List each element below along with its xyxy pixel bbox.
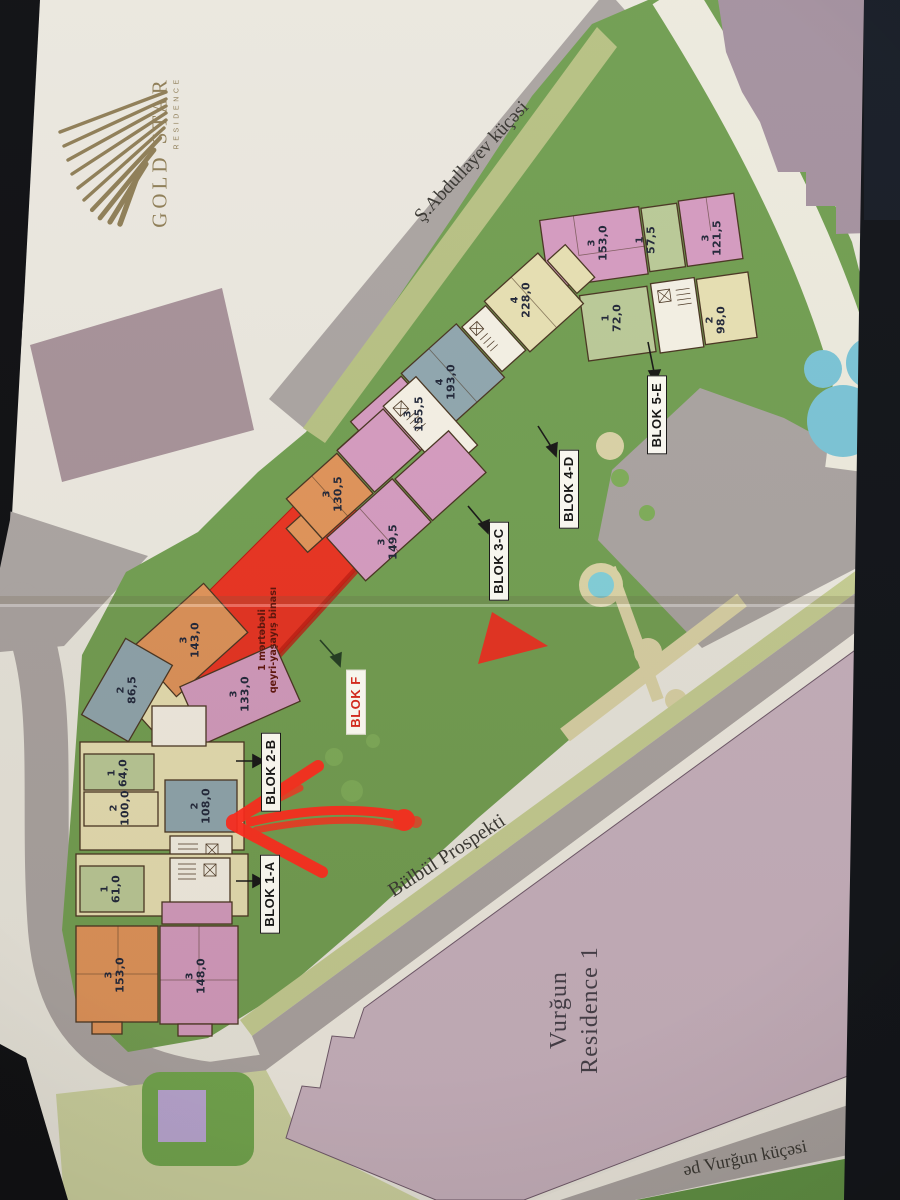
- vurgun-line2: Residence 1: [575, 946, 606, 1074]
- site-plan-photo: GOLD STAR RESIDENCE Ş.Abdullayev küçəsi …: [0, 0, 900, 1200]
- unit-area: 121,5: [711, 220, 722, 256]
- pond: [804, 350, 842, 388]
- unit-label: 3153,0: [104, 957, 125, 993]
- unit-label: 157,5: [635, 226, 656, 254]
- note-line2: qeyri-yaşayış binası: [268, 587, 279, 693]
- unit-label: 4193,0: [435, 364, 456, 400]
- unit-area: 153,0: [114, 957, 125, 993]
- unit-area: 61,0: [110, 875, 121, 903]
- unit-area: 155,5: [413, 396, 424, 432]
- block-label-1a: BLOK 1-A: [260, 854, 280, 933]
- unit-area: 108,0: [200, 788, 211, 824]
- unit-label: 3130,5: [322, 476, 343, 512]
- unit-label: 3133,0: [229, 676, 250, 712]
- vurgun-line1: Vurğun: [544, 971, 575, 1049]
- unit-area: 72,0: [611, 304, 622, 332]
- unit-label: 161,0: [100, 875, 121, 903]
- unit-area: 228,0: [520, 282, 531, 318]
- gold-star-logo: GOLD STAR RESIDENCE: [148, 76, 181, 228]
- unit-area: 57,5: [645, 226, 656, 254]
- unit-label: 3149,5: [377, 524, 398, 560]
- unit-label: 286,5: [116, 676, 137, 704]
- unit-area: 148,0: [195, 958, 206, 994]
- fold-crease: [0, 596, 900, 604]
- unit-area: 98,0: [715, 306, 726, 334]
- unit-area: 100,0: [119, 790, 130, 826]
- park-path: [596, 432, 624, 460]
- block-label-4d: BLOK 4-D: [559, 449, 579, 528]
- unit-label: 3121,5: [701, 220, 722, 256]
- unit-area: 64,0: [117, 759, 128, 787]
- note-line1: 1 mərtəbəli: [257, 609, 268, 671]
- unit-area: 133,0: [239, 676, 250, 712]
- block-label-5e: BLOK 5-E: [647, 376, 667, 455]
- fold-highlight: [0, 604, 900, 607]
- unit-area: 130,5: [332, 476, 343, 512]
- unit-label: 164,0: [107, 759, 128, 787]
- vurgun-residence-label: Vurğun Residence 1: [544, 946, 606, 1074]
- fountain-pond: [588, 572, 614, 598]
- unit-label: 3143,0: [179, 622, 200, 658]
- logo-subtitle: RESIDENCE: [174, 76, 181, 149]
- logo-title: GOLD STAR: [148, 76, 173, 228]
- unit-label: 298,0: [705, 306, 726, 334]
- unit-label: 3153,0: [587, 225, 608, 261]
- unit-label: 172,0: [601, 304, 622, 332]
- photo-edge-right-tint: [864, 0, 900, 220]
- unit-area: 143,0: [189, 622, 200, 658]
- unit-area: 193,0: [445, 364, 456, 400]
- unit-label: 2100,0: [109, 790, 130, 826]
- unit-area: 86,5: [126, 676, 137, 704]
- unit-label: 3155,5: [403, 396, 424, 432]
- non-residential-note: 1 mərtəbəli qeyri-yaşayış binası: [257, 587, 279, 693]
- unit-label: 4228,0: [510, 282, 531, 318]
- unit-area: 149,5: [387, 524, 398, 560]
- block-label-2b: BLOK 2-B: [261, 732, 281, 811]
- unit-label: 3148,0: [185, 958, 206, 994]
- unit-area: 153,0: [597, 225, 608, 261]
- unit-label: 2108,0: [190, 788, 211, 824]
- block-label-3c: BLOK 3-C: [489, 521, 509, 600]
- block-label-f: BLOK F: [346, 669, 366, 734]
